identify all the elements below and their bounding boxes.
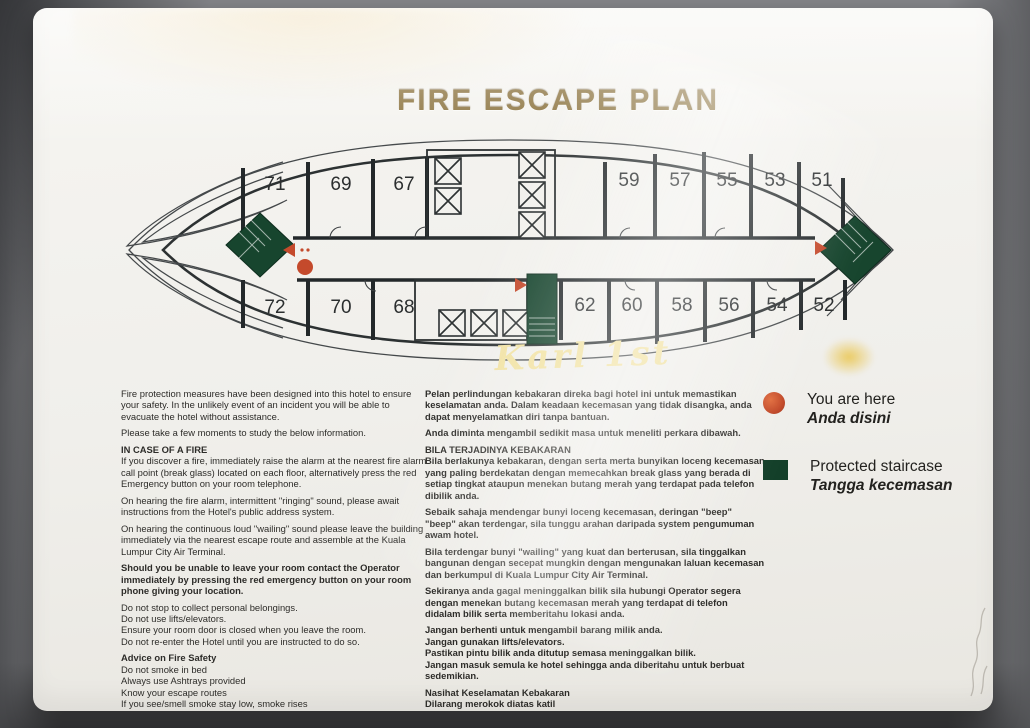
instructions-malay: Pelan perlindungan kebakaran direka bagi… — [425, 388, 765, 711]
ms-rule: Jangan berhenti untuk mengambil barang m… — [425, 624, 765, 635]
ms-tips: Dilarang merokok diatas katil Gunakan te… — [425, 698, 765, 711]
pencil-scribble — [961, 606, 993, 701]
en-tip: If you see/smell smoke stay low, smoke r… — [121, 698, 427, 709]
you-are-here-marker-icon — [763, 392, 785, 414]
room-number: 55 — [716, 170, 737, 191]
room-number: 59 — [618, 170, 639, 191]
legend: You are here Anda disini Protected stair… — [763, 390, 993, 524]
ms-rule: Pastikan pintu bilik anda ditutup semasa… — [425, 647, 765, 658]
ms-heading-kebakaran: BILA TERJADINYA KEBAKARAN — [425, 444, 765, 455]
en-study-note: Please take a few moments to study the b… — [121, 427, 427, 438]
room-number: 57 — [669, 170, 690, 191]
en-paragraph: On hearing the continuous loud "wailing"… — [121, 523, 427, 557]
ms-intro: Pelan perlindungan kebakaran direka bagi… — [425, 388, 765, 422]
ms-rule: Jangan gunakan lifts/elevators. — [425, 636, 765, 647]
ms-paragraph: Bila berlakunya kebakaran, dengan serta … — [425, 455, 765, 501]
protected-staircase-label-ms: Tangga kecemasan — [810, 476, 952, 495]
staircase-left — [226, 213, 294, 277]
ms-paragraph: Sebaik sahaja mendengar bunyi loceng kec… — [425, 506, 765, 540]
instructions-english: Fire protection measures have been desig… — [121, 388, 427, 711]
you-are-here-dot — [297, 259, 313, 275]
room-number: 56 — [718, 295, 739, 316]
room-number: 67 — [393, 174, 414, 195]
en-paragraph: On hearing the fire alarm, intermittent … — [121, 495, 427, 518]
you-are-here-label-en: You are here — [807, 390, 895, 409]
room-number: 71 — [264, 174, 285, 195]
ms-study-note: Anda diminta mengambil sedikit masa untu… — [425, 427, 765, 438]
legend-you-are-here: You are here Anda disini — [763, 390, 993, 429]
en-rule: Do not use lifts/elevators. — [121, 613, 427, 624]
ms-rules: Jangan berhenti untuk mengambil barang m… — [425, 624, 765, 681]
room-number: 69 — [330, 174, 351, 195]
you-are-here-label-ms: Anda disini — [807, 409, 895, 428]
en-tips: Do not smoke in bed Always use Ashtrays … — [121, 664, 427, 711]
en-intro: Fire protection measures have been desig… — [121, 388, 427, 422]
room-number: 72 — [264, 297, 285, 318]
en-tip: Always use Ashtrays provided — [121, 675, 427, 686]
page-title: FIRE ESCAPE PLAN — [33, 84, 993, 118]
en-tip: Stay calm, don't panic — [121, 710, 427, 711]
ms-tip: Dilarang merokok diatas katil — [425, 698, 765, 709]
en-rules: Do not stop to collect personal belongin… — [121, 602, 427, 648]
protected-staircase-label-en: Protected staircase — [810, 457, 952, 476]
en-rule: Do not re-enter the Hotel until you are … — [121, 636, 427, 647]
room-number: 70 — [330, 297, 351, 318]
en-rule: Ensure your room door is closed when you… — [121, 624, 427, 635]
en-tip: Know your escape routes — [121, 687, 427, 698]
room-number: 51 — [811, 170, 832, 191]
ms-paragraph: Bila terdengar bunyi "wailing" yang kuat… — [425, 546, 765, 580]
glare-yellow-spot — [823, 338, 875, 376]
room-number: 54 — [766, 295, 788, 316]
sign-panel: FIRE ESCAPE PLAN — [33, 8, 993, 711]
ms-tip: Gunakan tempat abu rokok yang disediakan… — [425, 710, 765, 711]
ms-rule: Jangan masuk semula ke hotel sehingga an… — [425, 659, 765, 682]
room-number: 52 — [813, 295, 834, 316]
room-number: 60 — [621, 295, 642, 316]
en-operator-notice: Should you be unable to leave your room … — [121, 562, 427, 596]
photo-of-fire-escape-plan-sign: { "sign": { "title": "FIRE ESCAPE PLAN",… — [0, 0, 1030, 728]
room-number: 58 — [671, 295, 692, 316]
en-tip: Do not smoke in bed — [121, 664, 427, 675]
staircase-middle — [527, 274, 557, 344]
en-heading-advice: Advice on Fire Safety — [121, 652, 427, 663]
protected-staircase-marker-icon — [763, 460, 788, 480]
ms-heading-nasihat: Nasihat Keselamatan Kebakaran — [425, 687, 765, 698]
legend-protected-staircase: Protected staircase Tangga kecemasan — [763, 457, 993, 496]
room-number: 53 — [764, 170, 785, 191]
en-rule: Do not stop to collect personal belongin… — [121, 602, 427, 613]
room-number: 68 — [393, 297, 414, 318]
room-number: 62 — [574, 295, 595, 316]
en-heading-in-case-of-fire: IN CASE OF A FIRE — [121, 444, 427, 455]
en-paragraph: If you discover a fire, immediately rais… — [121, 455, 427, 489]
ms-operator-notice: Sekiranya anda gagal meninggalkan bilik … — [425, 585, 765, 619]
